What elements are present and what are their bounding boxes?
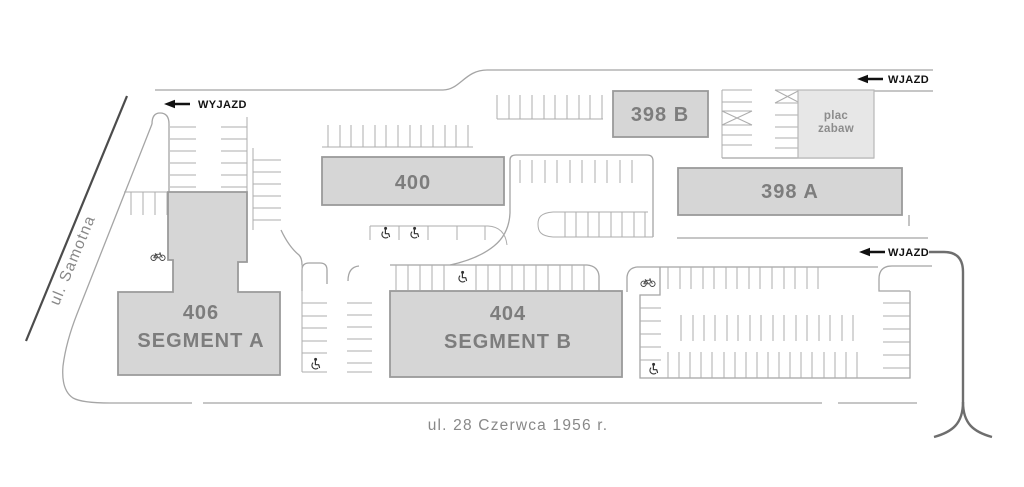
building-398b-label: 398 B	[631, 104, 689, 126]
stalls-crossed-col1	[722, 90, 752, 158]
arrow-left-icon	[859, 248, 885, 257]
entrance-top-label: WJAZD	[888, 74, 929, 86]
parking-site-map: 400 398 B 398 A 404 SEGMENT B 406 SEGMEN…	[0, 0, 1024, 487]
lot-entrance-curve	[879, 266, 932, 291]
site-map-page: 400 398 B 398 A 404 SEGMENT B 406 SEGMEN…	[0, 0, 1024, 487]
wheelchair-icon	[382, 227, 390, 238]
stalls-disabled-below-400	[370, 226, 507, 245]
entrance-top-sign-group: WJAZD	[857, 74, 929, 86]
exit-label: WYJAZD	[198, 99, 247, 111]
east-road-curve	[929, 252, 963, 402]
bicycle-icon	[151, 253, 165, 260]
lot-col-right	[883, 303, 910, 368]
lot-row-middle	[681, 315, 853, 341]
stalls-above-400	[322, 125, 473, 147]
curve-disabled-column-top	[302, 263, 327, 291]
stalls-above-404	[396, 265, 584, 290]
building-404-number: 404	[490, 303, 526, 325]
wheelchair-icon	[312, 358, 320, 369]
arrow-left-icon	[857, 75, 883, 84]
wheelchair-icon	[459, 271, 467, 282]
stalls-west-col-c	[253, 148, 281, 230]
building-400-label: 400	[395, 172, 431, 194]
stalls-west-small	[124, 192, 168, 215]
stalls-east-400-upper	[520, 160, 632, 183]
lot-row-bottom	[668, 352, 857, 378]
east-access-road	[929, 252, 992, 437]
building-398a-label: 398 A	[761, 181, 819, 203]
stalls-404-top-edge	[390, 265, 599, 291]
north-road-edge	[155, 70, 933, 90]
bicycle-icon	[641, 279, 655, 286]
street-samotna-edge	[26, 96, 127, 341]
stalls-mid-col-b	[347, 303, 372, 372]
playground-label-line1: plac	[824, 110, 849, 122]
curve-406-east	[281, 230, 302, 265]
wheelchair-icon	[411, 227, 419, 238]
east-road-flare-left	[934, 402, 963, 437]
building-404-segment: SEGMENT B	[444, 331, 572, 353]
stalls-mid-col-disabled	[302, 265, 327, 372]
wheelchair-icon	[650, 363, 658, 374]
lot-col-left	[640, 308, 661, 360]
playground-label-line2: zabaw	[818, 123, 854, 135]
stalls-row-north	[497, 95, 603, 119]
entrance-right-label: WJAZD	[888, 247, 929, 259]
exit-ramp-edge	[152, 113, 169, 192]
stalls-west-col-a	[170, 127, 196, 187]
stalls-crossed-col2	[775, 90, 800, 148]
exit-sign-group: WYJAZD	[164, 99, 247, 111]
curve-column-top	[348, 266, 359, 281]
entrance-right-sign-group: WJAZD	[859, 247, 929, 259]
east-road-flare-right	[963, 402, 992, 437]
arrow-left-icon	[164, 100, 190, 109]
stalls-east-400-lower	[538, 212, 653, 237]
building-406-segment: SEGMENT A	[137, 330, 264, 352]
lot-row-top	[668, 267, 818, 289]
street-czerwca-label: ul. 28 Czerwca 1956 r.	[428, 417, 609, 434]
building-406-number: 406	[183, 302, 219, 324]
curve-lot-west	[627, 267, 637, 292]
